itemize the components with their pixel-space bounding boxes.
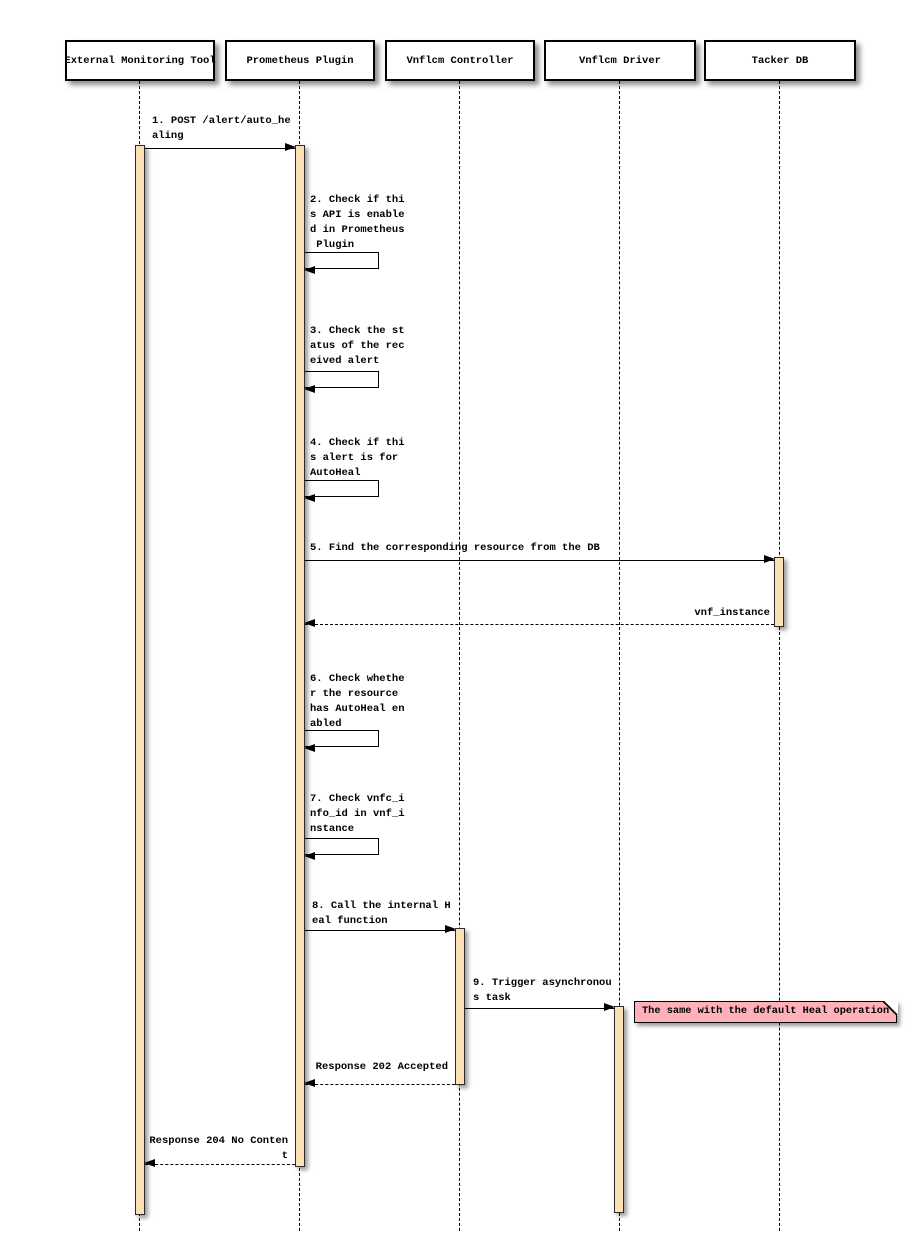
response-204-label: Response 204 No Conten t — [138, 1134, 288, 1164]
arrowhead-icon — [304, 744, 315, 752]
response-204-arrow — [145, 1164, 295, 1165]
message-7-self-arrow — [305, 838, 379, 855]
activation-vnflcm-driver — [614, 1006, 624, 1213]
note-fold-icon — [883, 1001, 898, 1016]
arrowhead-icon — [304, 852, 315, 860]
arrowhead-icon — [604, 1003, 615, 1011]
lifeline-tacker-db — [779, 81, 780, 1231]
participant-vnflcm-controller: Vnflcm Controller — [385, 40, 535, 81]
participant-vnflcm-driver: Vnflcm Driver — [544, 40, 696, 81]
sequence-diagram: External Monitoring Tool Prometheus Plug… — [0, 0, 918, 1242]
arrowhead-icon — [304, 266, 315, 274]
message-6-label: 6. Check whethe r the resource has AutoH… — [310, 672, 405, 732]
message-4-self-arrow — [305, 480, 379, 497]
participant-label: Prometheus Plugin — [246, 55, 353, 67]
arrowhead-icon — [304, 385, 315, 393]
participant-label: External Monitoring Tool — [64, 55, 215, 67]
message-8-label: 8. Call the internal H eal function — [312, 899, 451, 929]
arrowhead-icon — [285, 143, 296, 151]
response-202-label: Response 202 Accepted — [298, 1060, 448, 1075]
message-2-self-arrow — [305, 252, 379, 269]
participant-prometheus-plugin: Prometheus Plugin — [225, 40, 375, 81]
message-1-label: 1. POST /alert/auto_he aling — [152, 114, 291, 144]
message-2-label: 2. Check if thi s API is enable d in Pro… — [310, 193, 405, 253]
activation-vnflcm-controller — [455, 928, 465, 1085]
arrowhead-icon — [764, 555, 775, 563]
arrowhead-icon — [304, 494, 315, 502]
participant-label: Vnflcm Controller — [406, 55, 513, 67]
note-text: The same with the default Heal operation — [642, 1005, 889, 1017]
message-8-arrow — [305, 930, 455, 931]
message-5-label: 5. Find the corresponding resource from … — [310, 541, 600, 556]
participant-label: Vnflcm Driver — [579, 55, 661, 67]
arrowhead-icon — [445, 925, 456, 933]
message-9-label: 9. Trigger asynchronou s task — [473, 976, 612, 1006]
message-4-label: 4. Check if thi s alert is for AutoHeal — [310, 436, 405, 481]
message-3-label: 3. Check the st atus of the rec eived al… — [310, 324, 405, 369]
participant-label: Tacker DB — [752, 55, 809, 67]
activation-prometheus-plugin — [295, 145, 305, 1167]
return-vnf-instance-arrow — [305, 624, 774, 625]
response-202-arrow — [305, 1084, 455, 1085]
activation-external-monitoring-tool — [135, 145, 145, 1215]
message-9-arrow — [465, 1008, 614, 1009]
message-3-self-arrow — [305, 371, 379, 388]
arrowhead-icon — [144, 1159, 155, 1167]
note: The same with the default Heal operation — [634, 1001, 897, 1023]
return-vnf-instance-label: vnf_instance — [600, 606, 770, 621]
message-1-arrow — [145, 148, 295, 149]
participant-tacker-db: Tacker DB — [704, 40, 856, 81]
arrowhead-icon — [304, 619, 315, 627]
message-6-self-arrow — [305, 730, 379, 747]
activation-tacker-db — [774, 557, 784, 627]
message-7-label: 7. Check vnfc_i nfo_id in vnf_i nstance — [310, 792, 405, 837]
arrowhead-icon — [304, 1079, 315, 1087]
message-5-arrow — [305, 560, 774, 561]
participant-external-monitoring-tool: External Monitoring Tool — [65, 40, 215, 81]
